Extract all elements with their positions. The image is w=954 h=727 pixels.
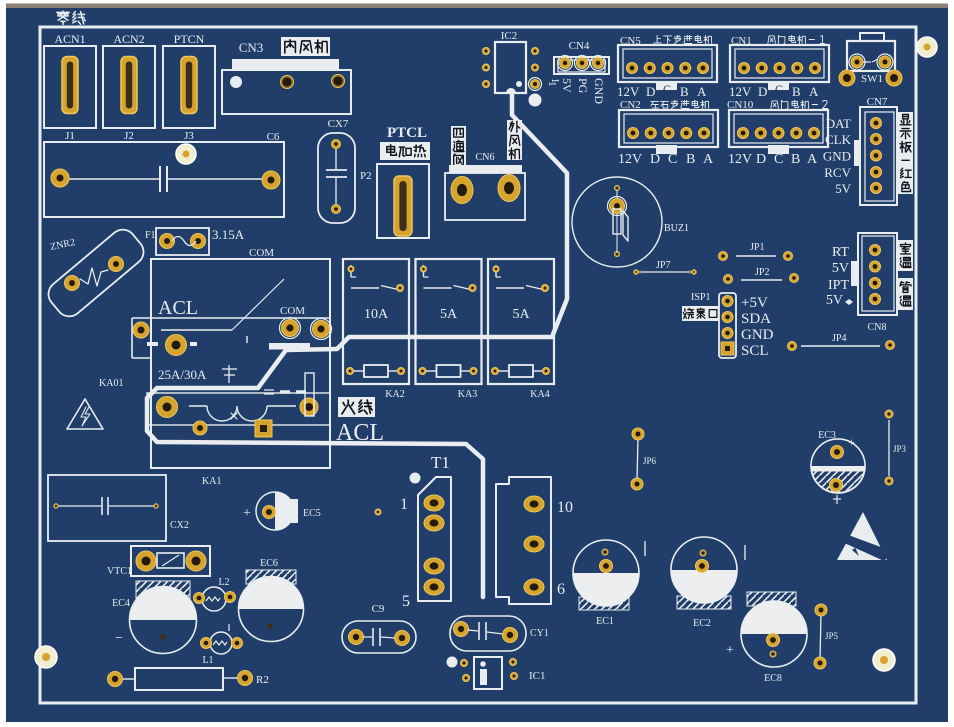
- svg-text:D: D: [756, 152, 766, 167]
- svg-text:EC3: EC3: [818, 430, 836, 441]
- svg-text:EC2: EC2: [693, 618, 711, 629]
- svg-text:PTCN: PTCN: [174, 32, 205, 46]
- svg-text:A: A: [807, 152, 818, 167]
- svg-text:5A: 5A: [440, 307, 458, 322]
- svg-text:CY1: CY1: [530, 628, 549, 639]
- svg-text:IC2: IC2: [501, 30, 518, 42]
- svg-text:A: A: [697, 84, 707, 99]
- svg-text:JP7: JP7: [656, 260, 670, 271]
- svg-text:ISP1: ISP1: [691, 292, 710, 303]
- svg-text:A: A: [703, 152, 714, 167]
- svg-text:C: C: [668, 152, 677, 167]
- svg-text:12V: 12V: [617, 84, 640, 99]
- svg-text:IPT: IPT: [828, 278, 849, 293]
- svg-text:CN4: CN4: [569, 40, 590, 52]
- svg-text:COM: COM: [280, 305, 305, 317]
- svg-text:CN8: CN8: [868, 322, 887, 333]
- svg-text:ACN1: ACN1: [54, 32, 85, 46]
- svg-text:B: B: [680, 84, 689, 99]
- svg-text:JP2: JP2: [755, 267, 769, 278]
- svg-text:SCL: SCL: [741, 343, 769, 359]
- svg-text:SDA: SDA: [741, 311, 771, 327]
- svg-text:C9: C9: [372, 603, 385, 615]
- svg-text:KA4: KA4: [530, 389, 549, 400]
- svg-text:COM: COM: [249, 247, 274, 259]
- svg-text:L2: L2: [218, 577, 229, 588]
- svg-text:CN6: CN6: [476, 152, 495, 163]
- svg-text:5V: 5V: [832, 261, 849, 276]
- svg-text:D: D: [758, 84, 767, 99]
- svg-text:JP3: JP3: [893, 444, 907, 454]
- svg-text:JP6: JP6: [643, 456, 657, 466]
- svg-text:RCV: RCV: [824, 165, 851, 180]
- svg-text:J3: J3: [184, 130, 194, 142]
- svg-text:CX2: CX2: [170, 520, 189, 531]
- svg-text:EC5: EC5: [303, 508, 321, 519]
- svg-text:SW1: SW1: [861, 73, 883, 85]
- svg-text:EC8: EC8: [764, 673, 782, 684]
- svg-text:T1: T1: [431, 453, 450, 472]
- svg-text:KA01: KA01: [99, 378, 123, 389]
- svg-text:R2: R2: [256, 674, 269, 686]
- svg-text:CLK: CLK: [825, 132, 852, 147]
- svg-text:5: 5: [402, 593, 410, 610]
- svg-text:1: 1: [400, 496, 408, 513]
- svg-text:B: B: [686, 152, 695, 167]
- svg-text:C: C: [663, 82, 671, 96]
- svg-text:CX7: CX7: [328, 118, 349, 130]
- svg-text:12V: 12V: [728, 152, 752, 167]
- svg-text:ACN2: ACN2: [113, 32, 144, 46]
- svg-text:JP4: JP4: [832, 333, 846, 344]
- svg-text:CN3: CN3: [239, 40, 264, 55]
- svg-text:10A: 10A: [364, 307, 389, 322]
- svg-text:12V: 12V: [618, 152, 642, 167]
- svg-text:+: +: [243, 506, 251, 521]
- svg-text:KA2: KA2: [385, 389, 404, 400]
- svg-text:RT: RT: [832, 245, 849, 260]
- svg-text:3.15A: 3.15A: [212, 227, 245, 242]
- svg-text:PG: PG: [576, 78, 590, 94]
- svg-text:12V: 12V: [729, 84, 752, 99]
- svg-text:ACL: ACL: [336, 420, 384, 446]
- svg-text:P2: P2: [360, 170, 372, 182]
- svg-text:EC4: EC4: [112, 598, 130, 609]
- svg-text:25A/30A: 25A/30A: [158, 367, 207, 382]
- svg-text:BUZ1: BUZ1: [664, 223, 689, 234]
- svg-text:5V: 5V: [560, 78, 574, 93]
- svg-text:D: D: [646, 84, 655, 99]
- svg-text:GND: GND: [592, 78, 606, 104]
- svg-text:5V: 5V: [826, 293, 843, 308]
- svg-text:GND: GND: [741, 327, 774, 343]
- svg-text:PTCL: PTCL: [387, 125, 427, 141]
- svg-text:A: A: [809, 84, 819, 99]
- svg-text:L1: L1: [202, 655, 213, 666]
- svg-text:+: +: [848, 435, 855, 449]
- svg-text:B: B: [792, 84, 801, 99]
- svg-text:5V: 5V: [835, 181, 852, 196]
- svg-text:6: 6: [557, 581, 565, 598]
- svg-text:ACL: ACL: [158, 297, 198, 319]
- svg-text:GND: GND: [823, 149, 851, 164]
- svg-text:VTC1: VTC1: [107, 566, 132, 577]
- svg-text:+: +: [726, 643, 734, 658]
- svg-text:1: 1: [549, 78, 560, 83]
- svg-text:J2: J2: [124, 130, 134, 142]
- svg-text:DAT: DAT: [826, 116, 851, 131]
- svg-text:B: B: [791, 152, 800, 167]
- svg-text:10: 10: [557, 499, 573, 516]
- svg-text:EC1: EC1: [596, 616, 614, 627]
- svg-text:5A: 5A: [512, 307, 530, 322]
- svg-text:J1: J1: [65, 130, 75, 142]
- svg-text:IC1: IC1: [529, 670, 546, 682]
- svg-text:KA1: KA1: [202, 476, 221, 487]
- svg-text:C6: C6: [267, 131, 280, 143]
- svg-text:F1: F1: [145, 230, 156, 241]
- svg-text:C: C: [775, 82, 783, 96]
- svg-text:JP5: JP5: [825, 631, 839, 641]
- svg-text:+5V: +5V: [741, 295, 768, 311]
- svg-text:EC6: EC6: [260, 558, 278, 569]
- svg-text:D: D: [650, 152, 660, 167]
- svg-text:C: C: [774, 152, 783, 167]
- svg-text:KA3: KA3: [458, 389, 477, 400]
- svg-text:−: −: [115, 631, 123, 646]
- svg-text:JP1: JP1: [750, 242, 764, 253]
